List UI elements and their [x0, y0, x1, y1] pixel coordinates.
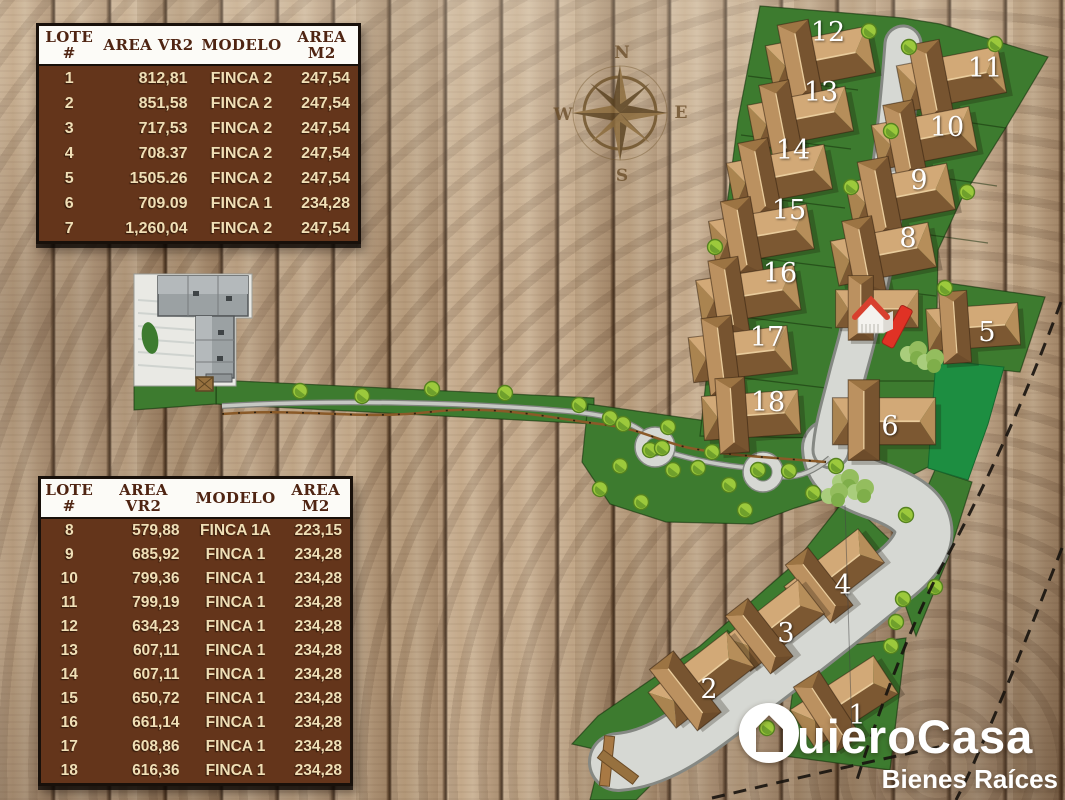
lot-table-bottom-body: 8579,88FINCA 1A223,159685,92FINCA 1234,2…	[40, 518, 352, 785]
table-cell: 2	[38, 91, 100, 116]
table-cell: 9	[40, 543, 98, 567]
site-plan-image: 1 2 3 4 5 6 8 9 10 11 12 13 14 15 16 17 …	[0, 0, 1065, 800]
table-cell: FINCA 2	[198, 65, 286, 91]
table-cell: 608,86	[98, 735, 190, 759]
col-area-vr2: AREA VR2	[100, 25, 198, 66]
table-cell: 7	[38, 216, 100, 243]
lot-6-label: 6	[881, 411, 898, 442]
lot-table-bottom-header: LOTE# AREAVR2 MODELO AREAM2	[40, 478, 352, 519]
table-cell: 11	[40, 591, 98, 615]
table-cell: FINCA 1	[190, 759, 282, 785]
compass-east-label: E	[675, 103, 688, 123]
table-row: 1812,81FINCA 2247,54	[38, 65, 360, 91]
table-row: 15650,72FINCA 1234,28	[40, 687, 352, 711]
entrance-building	[134, 274, 252, 391]
table-cell: 18	[40, 759, 98, 785]
lot-8-label: 8	[899, 223, 916, 254]
lot-2-label: 2	[700, 674, 717, 705]
table-cell: 234,28	[282, 663, 352, 687]
table-cell: 3	[38, 116, 100, 141]
table-cell: 247,54	[286, 141, 360, 166]
table-cell: FINCA 1	[190, 591, 282, 615]
table-cell: 799,19	[98, 591, 190, 615]
col-modelo: MODELO	[198, 25, 286, 66]
table-cell: 708.37	[100, 141, 198, 166]
table-cell: 16	[40, 711, 98, 735]
lot-15-label: 15	[772, 195, 806, 226]
lot-4-label: 4	[834, 570, 851, 601]
col-area-vr2: AREAVR2	[98, 478, 190, 519]
table-row: 10799,36FINCA 1234,28	[40, 567, 352, 591]
table-row: 3717,53FINCA 2247,54	[38, 116, 360, 141]
table-cell: 8	[40, 518, 98, 543]
table-row: 2851,58FINCA 2247,54	[38, 91, 360, 116]
lot-table-bottom: LOTE# AREAVR2 MODELO AREAM2 8579,88FINCA…	[38, 476, 353, 786]
table-row: 16661,14FINCA 1234,28	[40, 711, 352, 735]
lot-5-label: 5	[978, 317, 995, 348]
table-cell: FINCA 1	[190, 663, 282, 687]
table-cell: FINCA 2	[198, 216, 286, 243]
table-cell: 13	[40, 639, 98, 663]
table-row: 4708.37FINCA 2247,54	[38, 141, 360, 166]
table-cell: 234,28	[282, 687, 352, 711]
lot-14-label: 14	[776, 135, 810, 166]
table-cell: 12	[40, 615, 98, 639]
table-cell: 247,54	[286, 116, 360, 141]
table-cell: 650,72	[98, 687, 190, 711]
logo-tagline: Bienes Raíces	[882, 764, 1058, 794]
table-cell: 234,28	[282, 711, 352, 735]
table-cell: 1	[38, 65, 100, 91]
table-cell: 247,54	[286, 166, 360, 191]
table-cell: 799,36	[98, 567, 190, 591]
lot-18-label: 18	[751, 387, 785, 418]
table-cell: 5	[38, 166, 100, 191]
compass-rose-icon: N S W E	[543, 34, 703, 194]
table-cell: 10	[40, 567, 98, 591]
table-cell: 607,11	[98, 663, 190, 687]
table-cell: 579,88	[98, 518, 190, 543]
table-row: 71,260,04FINCA 2247,54	[38, 216, 360, 243]
table-row: 17608,86FINCA 1234,28	[40, 735, 352, 759]
table-cell: 661,14	[98, 711, 190, 735]
lot-table-top-header: LOTE# AREA VR2 MODELO AREAM2	[38, 25, 360, 66]
table-cell: FINCA 2	[198, 166, 286, 191]
lot-table-top-body: 1812,81FINCA 2247,542851,58FINCA 2247,54…	[38, 65, 360, 243]
table-cell: 1,260,04	[100, 216, 198, 243]
table-cell: 6	[38, 191, 100, 216]
compass-north-label: N	[614, 43, 630, 63]
table-cell: FINCA 1	[190, 735, 282, 759]
table-row: 8579,88FINCA 1A223,15	[40, 518, 352, 543]
table-cell: 234,28	[282, 759, 352, 785]
table-cell: 247,54	[286, 91, 360, 116]
table-cell: 685,92	[98, 543, 190, 567]
table-cell: 234,28	[282, 543, 352, 567]
table-cell: 634,23	[98, 615, 190, 639]
table-cell: FINCA 1	[190, 615, 282, 639]
table-cell: 812,81	[100, 65, 198, 91]
table-cell: 607,11	[98, 639, 190, 663]
table-row: 9685,92FINCA 1234,28	[40, 543, 352, 567]
table-row: 12634,23FINCA 1234,28	[40, 615, 352, 639]
wood-crate	[196, 377, 213, 391]
table-cell: FINCA 1	[190, 711, 282, 735]
lot-table-top: LOTE# AREA VR2 MODELO AREAM2 1812,81FINC…	[36, 23, 361, 244]
table-cell: 851,58	[100, 91, 198, 116]
table-cell: 717,53	[100, 116, 198, 141]
table-cell: FINCA 1	[190, 687, 282, 711]
table-cell: 15	[40, 687, 98, 711]
table-cell: 247,54	[286, 65, 360, 91]
lot-13-label: 13	[804, 77, 838, 108]
lot-16-label: 16	[763, 258, 797, 289]
table-cell: 234,28	[282, 615, 352, 639]
table-cell: 234,28	[282, 639, 352, 663]
compass-south-label: S	[616, 166, 628, 186]
table-cell: FINCA 1	[190, 639, 282, 663]
col-lote: LOTE#	[40, 478, 98, 519]
table-cell: 17	[40, 735, 98, 759]
table-cell: 234,28	[282, 735, 352, 759]
table-cell: FINCA 1	[198, 191, 286, 216]
table-cell: FINCA 2	[198, 141, 286, 166]
table-cell: 616,36	[98, 759, 190, 785]
table-cell: FINCA 2	[198, 91, 286, 116]
table-cell: 234,28	[286, 191, 360, 216]
compass-star	[572, 65, 668, 161]
table-cell: 234,28	[282, 591, 352, 615]
table-cell: FINCA 1	[190, 543, 282, 567]
table-row: 14607,11FINCA 1234,28	[40, 663, 352, 687]
table-cell: FINCA 1	[190, 567, 282, 591]
table-cell: 1505.26	[100, 166, 198, 191]
lot-12-label: 12	[811, 17, 845, 48]
table-cell: 4	[38, 141, 100, 166]
table-row: 13607,11FINCA 1234,28	[40, 639, 352, 663]
lot-9-label: 9	[910, 165, 927, 196]
col-modelo: MODELO	[190, 478, 282, 519]
table-cell: 247,54	[286, 216, 360, 243]
table-cell: 14	[40, 663, 98, 687]
table-cell: 223,15	[282, 518, 352, 543]
col-lote: LOTE#	[38, 25, 100, 66]
table-row: 51505.26FINCA 2247,54	[38, 166, 360, 191]
lot-17-label: 17	[750, 322, 784, 353]
logo-wordmark: uieroCasa	[797, 710, 1033, 763]
table-cell: 234,28	[282, 567, 352, 591]
table-cell: FINCA 2	[198, 116, 286, 141]
col-area-m2: AREAM2	[282, 478, 352, 519]
compass-west-label: W	[552, 105, 573, 125]
table-row: 18616,36FINCA 1234,28	[40, 759, 352, 785]
lot-10-label: 10	[930, 112, 964, 143]
brand-logo: uieroCasa Bienes Raíces	[728, 690, 1063, 798]
table-row: 6709.09FINCA 1234,28	[38, 191, 360, 216]
col-area-m2: AREAM2	[286, 25, 360, 66]
table-cell: 709.09	[100, 191, 198, 216]
lot-11-label: 11	[968, 53, 1002, 84]
table-cell: FINCA 1A	[190, 518, 282, 543]
table-row: 11799,19FINCA 1234,28	[40, 591, 352, 615]
lot-3-label: 3	[777, 618, 794, 649]
